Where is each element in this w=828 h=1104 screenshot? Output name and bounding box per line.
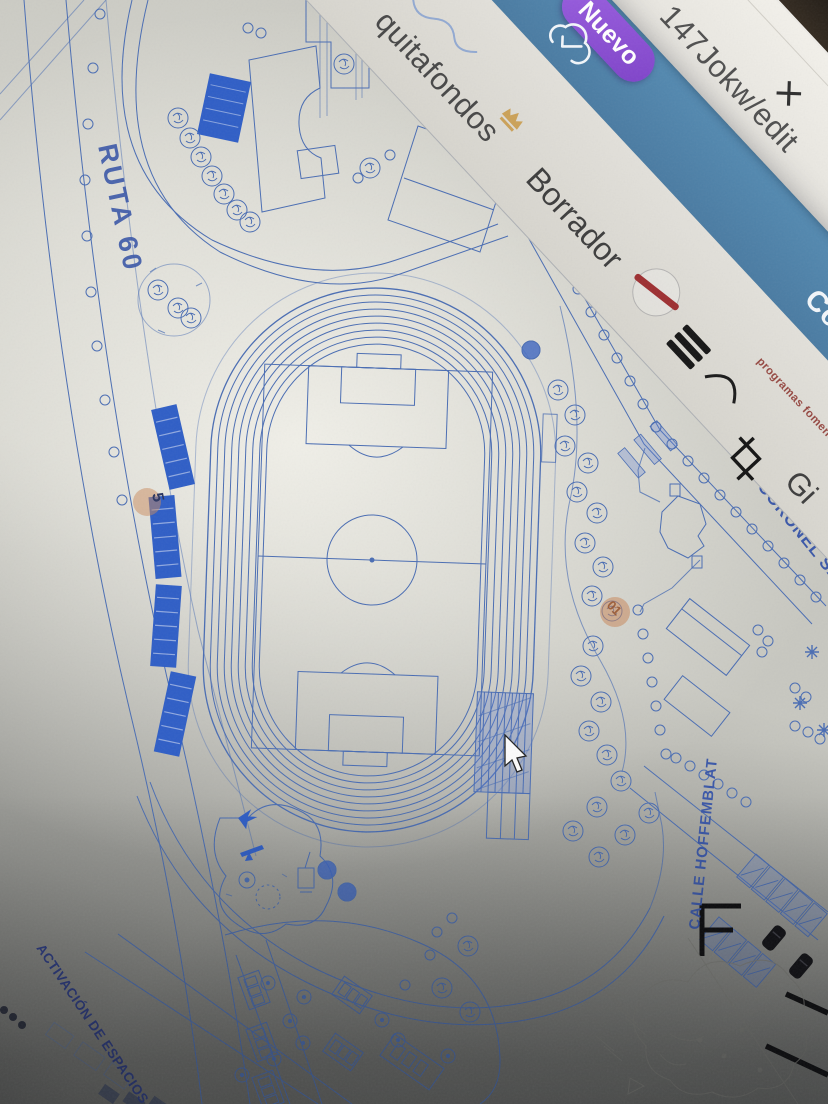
football-pitch	[251, 350, 493, 770]
tool-girar[interactable]: Gi	[777, 464, 824, 511]
screen-photo: 5 01 RUTA 60 CORONEL SA CALLE HOFFEMBLAT…	[0, 0, 828, 1104]
gray-sketch	[596, 938, 807, 1104]
red-slash-circle-icon[interactable]	[622, 258, 690, 326]
car-icon	[760, 924, 787, 953]
picnic-zone	[225, 921, 500, 1104]
snowflake-trees	[793, 645, 828, 737]
building-top-left	[197, 46, 339, 212]
label-ruta60: RUTA 60	[92, 141, 148, 275]
plaza-circle	[138, 264, 210, 336]
hatched-bays-mid	[618, 421, 678, 478]
parking-bays	[690, 854, 828, 1075]
menu-bars-icon[interactable]	[663, 324, 712, 373]
document-filename: programas fomento	[754, 356, 828, 448]
arc-curve-icon[interactable]	[699, 357, 754, 412]
car-icon	[787, 952, 814, 981]
playground	[214, 805, 333, 934]
share-button[interactable]: Co	[797, 283, 828, 335]
grandstands	[148, 404, 196, 757]
ellipsis-dots	[0, 1006, 26, 1029]
sheet-border-lines	[0, 0, 106, 120]
buildings-east	[638, 448, 750, 736]
track-pit	[472, 412, 557, 840]
